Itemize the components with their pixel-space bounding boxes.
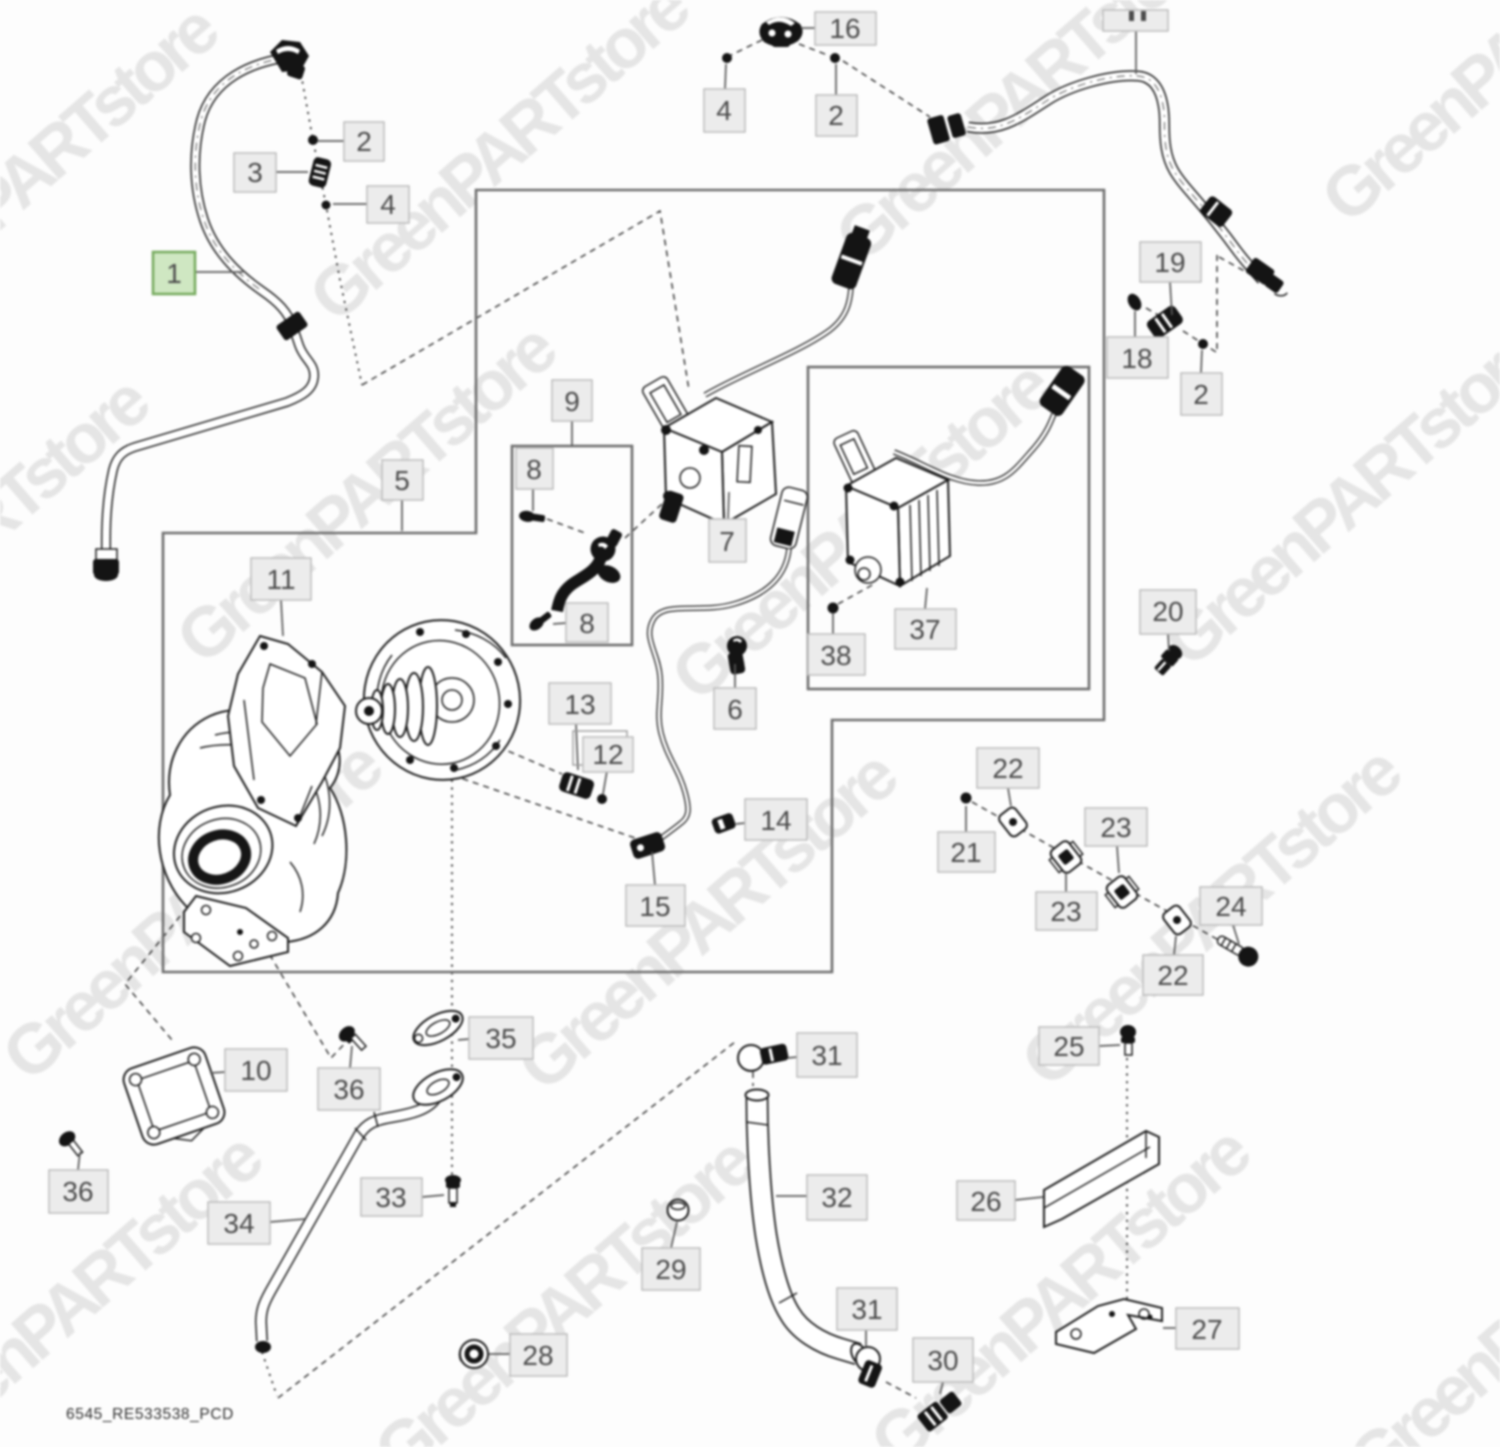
svg-text:14: 14: [760, 805, 791, 836]
svg-text:12: 12: [592, 739, 623, 770]
svg-text:GreenPARTstore: GreenPARTstore: [162, 309, 571, 679]
svg-text:36: 36: [333, 1074, 364, 1105]
svg-text:31: 31: [811, 1040, 842, 1071]
svg-text:23: 23: [1100, 812, 1131, 843]
svg-text:23: 23: [1050, 896, 1081, 927]
svg-text:GreenPARTstore: GreenPARTstore: [0, 362, 163, 732]
svg-text:30: 30: [927, 1345, 958, 1376]
svg-text:22: 22: [992, 753, 1023, 784]
svg-text:18: 18: [1121, 343, 1152, 374]
svg-text:20: 20: [1152, 596, 1183, 627]
svg-text:8: 8: [579, 608, 595, 639]
svg-text:19: 19: [1154, 247, 1185, 278]
svg-text:GreenPARTstore: GreenPARTstore: [295, 0, 704, 336]
svg-text:22: 22: [1157, 960, 1188, 991]
svg-text:15: 15: [639, 891, 670, 922]
svg-text:32: 32: [821, 1182, 852, 1213]
svg-text:1: 1: [166, 258, 182, 289]
svg-text:6545_RE533538_PCD: 6545_RE533538_PCD: [66, 1406, 234, 1423]
svg-text:2: 2: [356, 126, 372, 157]
svg-text:2: 2: [828, 100, 844, 131]
svg-text:6: 6: [727, 694, 743, 725]
svg-text:GreenPARTstore: GreenPARTstore: [856, 1112, 1265, 1447]
svg-text:2: 2: [1193, 379, 1209, 410]
svg-text:37: 37: [909, 614, 940, 645]
svg-text:28: 28: [522, 1340, 553, 1371]
svg-text:33: 33: [375, 1182, 406, 1213]
svg-text:4: 4: [716, 95, 732, 126]
svg-text:4: 4: [380, 189, 396, 220]
svg-text:35: 35: [485, 1023, 516, 1054]
svg-text:31: 31: [851, 1294, 882, 1325]
svg-text:27: 27: [1191, 1314, 1222, 1345]
svg-text:21: 21: [950, 837, 981, 868]
svg-text:GreenPARTstore: GreenPARTstore: [0, 1118, 276, 1447]
svg-text:GreenPARTstore: GreenPARTstore: [360, 1122, 769, 1447]
svg-text:16: 16: [829, 13, 860, 44]
svg-text:10: 10: [240, 1055, 271, 1086]
svg-text:29: 29: [655, 1254, 686, 1285]
svg-text:GreenPARTstore: GreenPARTstore: [1334, 1132, 1500, 1447]
svg-text:11: 11: [266, 564, 295, 595]
svg-text:24: 24: [1215, 891, 1246, 922]
svg-text:7: 7: [719, 526, 735, 557]
svg-text:26: 26: [970, 1186, 1001, 1217]
svg-text:36: 36: [62, 1176, 93, 1207]
svg-text:25: 25: [1053, 1031, 1084, 1062]
svg-text:5: 5: [394, 465, 410, 496]
svg-text:34: 34: [223, 1208, 254, 1239]
svg-text:GreenPARTstore: GreenPARTstore: [1307, 0, 1500, 237]
svg-text:8: 8: [526, 454, 542, 485]
svg-text:13: 13: [564, 689, 595, 720]
svg-text:3: 3: [247, 157, 263, 188]
svg-text:38: 38: [820, 640, 851, 671]
svg-text:9: 9: [564, 386, 580, 417]
